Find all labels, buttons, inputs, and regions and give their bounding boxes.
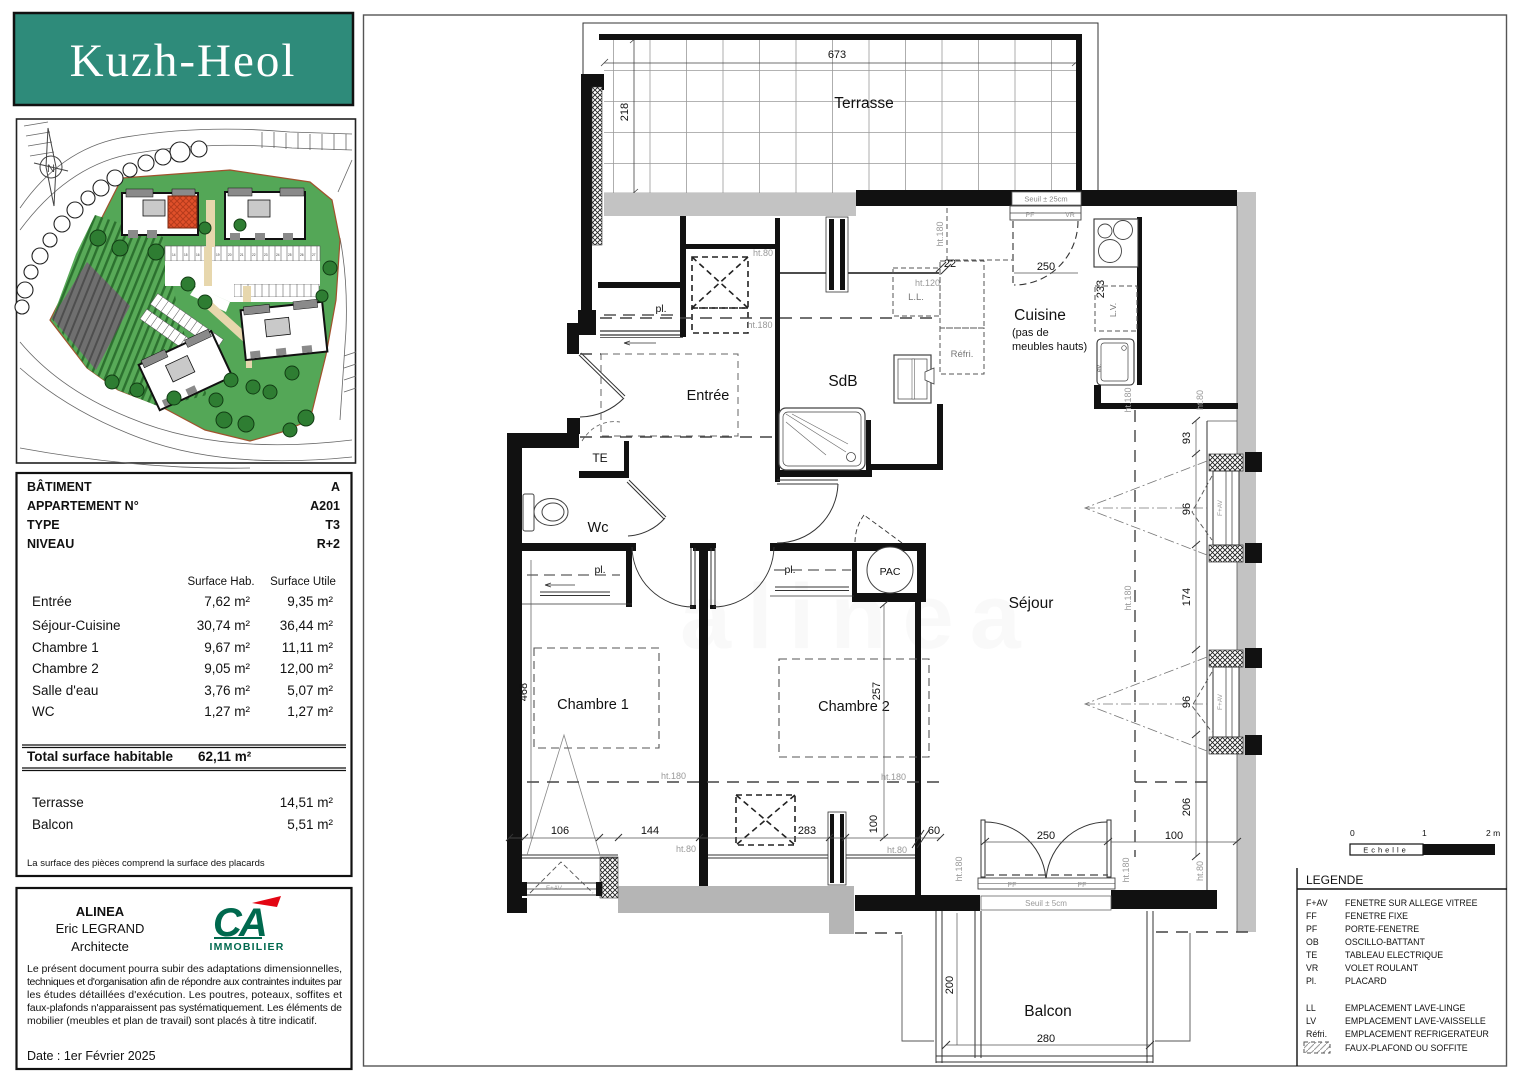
svg-text:EMPLACEMENT LAVE-LINGE: EMPLACEMENT LAVE-LINGE: [1345, 1003, 1466, 1013]
svg-text:PF: PF: [1008, 882, 1017, 889]
svg-text:2 m: 2 m: [1486, 828, 1500, 838]
svg-text:Chambre 2: Chambre 2: [818, 699, 890, 715]
svg-text:100: 100: [868, 815, 880, 833]
svg-text:15: 15: [184, 253, 188, 257]
svg-text:7,62 m²: 7,62 m²: [204, 594, 250, 609]
svg-text:L.L.: L.L.: [908, 292, 924, 303]
svg-text:257: 257: [871, 682, 883, 700]
svg-text:ht.180: ht.180: [954, 856, 964, 881]
svg-text:ht.80: ht.80: [1195, 861, 1205, 881]
svg-text:Date : 1er Février 2025: Date : 1er Février 2025: [27, 1049, 156, 1063]
svg-text:Entrée: Entrée: [32, 594, 72, 609]
svg-text:Le présent document pourra sub: Le présent document pourra subir des ada…: [27, 963, 342, 975]
svg-text:ht.80: ht.80: [887, 845, 907, 855]
svg-text:14,51 m²: 14,51 m²: [280, 795, 334, 810]
svg-text:25: 25: [288, 253, 292, 257]
svg-text:FAUX-PLAFOND OU SOFFITE: FAUX-PLAFOND OU SOFFITE: [1345, 1043, 1468, 1053]
svg-text:EMPLACEMENT LAVE-VAISSELLE: EMPLACEMENT LAVE-VAISSELLE: [1345, 1016, 1486, 1026]
svg-text:F+AV: F+AV: [546, 885, 563, 892]
svg-text:meubles hauts): meubles hauts): [1012, 341, 1087, 353]
svg-text:Surface Hab.: Surface Hab.: [187, 576, 254, 588]
svg-text:(pas de: (pas de: [1012, 327, 1049, 339]
svg-text:14: 14: [172, 253, 176, 257]
svg-text:Echelle: Echelle: [1363, 846, 1409, 855]
svg-text:144: 144: [641, 825, 659, 837]
svg-text:218: 218: [619, 103, 631, 121]
svg-text:Chambre 1: Chambre 1: [557, 697, 629, 713]
svg-text:Terrasse: Terrasse: [32, 795, 84, 810]
svg-text:Seuil ± 5cm: Seuil ± 5cm: [1025, 899, 1067, 908]
svg-text:Réfri.: Réfri.: [951, 349, 974, 360]
svg-text:3,76 m²: 3,76 m²: [204, 683, 250, 698]
svg-text:23: 23: [264, 253, 268, 257]
svg-text:96: 96: [1181, 503, 1193, 515]
svg-text:F+AV: F+AV: [1217, 693, 1224, 710]
svg-text:pl.: pl.: [655, 303, 666, 315]
svg-text:Séjour: Séjour: [1009, 595, 1054, 612]
svg-text:ht.120: ht.120: [915, 278, 940, 288]
svg-text:Séjour-Cuisine: Séjour-Cuisine: [32, 618, 121, 633]
svg-text:19: 19: [216, 253, 220, 257]
svg-text:FF: FF: [1306, 911, 1317, 921]
svg-text:9,35 m²: 9,35 m²: [287, 594, 333, 609]
svg-text:F+AV: F+AV: [1217, 499, 1224, 516]
svg-text:OSCILLO-BATTANT: OSCILLO-BATTANT: [1345, 937, 1425, 947]
svg-text:La surface des pièces comprend: La surface des pièces comprend la surfac…: [27, 858, 265, 869]
svg-text:1: 1: [1422, 828, 1427, 838]
svg-text:faux-plafonds n'apparaissent p: faux-plafonds n'apparaissent pas systéma…: [27, 1002, 342, 1014]
svg-text:22: 22: [252, 253, 256, 257]
svg-text:673: 673: [828, 49, 846, 61]
svg-text:93: 93: [1181, 432, 1193, 444]
svg-text:ht.180: ht.180: [881, 772, 906, 782]
svg-text:26: 26: [300, 253, 304, 257]
svg-text:L.V.: L.V.: [1108, 303, 1118, 317]
svg-text:468: 468: [518, 683, 530, 701]
svg-text:pl.: pl.: [784, 564, 795, 576]
svg-text:30,74 m²: 30,74 m²: [197, 618, 251, 633]
svg-text:BÂTIMENT: BÂTIMENT: [27, 479, 92, 494]
svg-text:5,07 m²: 5,07 m²: [287, 683, 333, 698]
svg-text:FENETRE SUR ALLEGE VITREE: FENETRE SUR ALLEGE VITREE: [1345, 898, 1478, 908]
svg-text:VOLET ROULANT: VOLET ROULANT: [1345, 963, 1419, 973]
svg-text:Surface Utile: Surface Utile: [270, 576, 336, 588]
svg-text:1,27 m²: 1,27 m²: [287, 704, 333, 719]
svg-text:OB: OB: [1306, 937, 1319, 947]
svg-text:Pl.: Pl.: [1306, 976, 1316, 986]
svg-text:Eric LEGRAND: Eric LEGRAND: [56, 921, 145, 936]
svg-text:A201: A201: [310, 499, 340, 513]
svg-text:27: 27: [312, 253, 316, 257]
svg-text:ht.180: ht.180: [1121, 857, 1131, 882]
svg-text:F+AV: F+AV: [1306, 898, 1328, 908]
svg-text:LEGENDE: LEGENDE: [1306, 873, 1363, 887]
svg-text:21: 21: [240, 253, 244, 257]
svg-text:PLACARD: PLACARD: [1345, 976, 1387, 986]
svg-text:36,44 m²: 36,44 m²: [280, 618, 334, 633]
svg-text:9,05 m²: 9,05 m²: [204, 661, 250, 676]
svg-text:PF: PF: [1026, 212, 1035, 219]
svg-text:NIVEAU: NIVEAU: [27, 537, 74, 551]
svg-text:T3: T3: [325, 518, 340, 532]
svg-text:LL: LL: [1306, 1003, 1316, 1013]
svg-text:22: 22: [944, 258, 956, 270]
svg-text:ht.80: ht.80: [676, 844, 696, 854]
svg-text:96: 96: [1181, 696, 1193, 708]
svg-text:R+2: R+2: [317, 537, 340, 551]
svg-text:IMMOBILIER: IMMOBILIER: [210, 941, 285, 953]
svg-text:Kuzh-Heol: Kuzh-Heol: [70, 35, 297, 87]
svg-text:20: 20: [228, 253, 232, 257]
svg-text:N: N: [47, 163, 55, 175]
svg-text:250: 250: [1037, 830, 1055, 842]
svg-text:1,27 m²: 1,27 m²: [204, 704, 250, 719]
svg-text:ht.180: ht.180: [747, 320, 772, 330]
svg-text:12,00 m²: 12,00 m²: [280, 661, 334, 676]
svg-text:24: 24: [276, 253, 280, 257]
svg-text:206: 206: [1181, 798, 1193, 816]
svg-text:ht.80: ht.80: [753, 248, 773, 258]
svg-text:Chambre 1: Chambre 1: [32, 640, 99, 655]
svg-text:les études détaillées d'exécut: les études détaillées d'exécution. Les p…: [27, 989, 342, 1001]
svg-text:ht.180: ht.180: [1123, 585, 1133, 610]
svg-text:Terrasse: Terrasse: [834, 95, 893, 112]
svg-text:Architecte: Architecte: [71, 939, 129, 954]
svg-text:11,11 m²: 11,11 m²: [282, 640, 334, 655]
svg-text:Seuil ± 25cm: Seuil ± 25cm: [1024, 195, 1067, 204]
svg-text:PAC: PAC: [880, 566, 901, 578]
svg-text:106: 106: [551, 825, 569, 837]
svg-text:ALINEA: ALINEA: [76, 904, 125, 919]
svg-text:Balcon: Balcon: [32, 817, 73, 832]
svg-text:PORTE-FENETRE: PORTE-FENETRE: [1345, 924, 1419, 934]
svg-text:280: 280: [1037, 1033, 1055, 1045]
svg-text:VR: VR: [1306, 963, 1318, 973]
svg-text:APPARTEMENT N°: APPARTEMENT N°: [27, 499, 139, 513]
svg-text:PF: PF: [1078, 882, 1087, 889]
svg-text:60: 60: [928, 825, 940, 837]
svg-text:ht.80: ht.80: [1195, 390, 1205, 410]
svg-text:TABLEAU ELECTRIQUE: TABLEAU ELECTRIQUE: [1345, 950, 1443, 960]
svg-text:EMPLACEMENT REFRIGERATEUR: EMPLACEMENT REFRIGERATEUR: [1345, 1029, 1489, 1039]
svg-text:250: 250: [1037, 261, 1055, 273]
svg-text:pl.: pl.: [594, 564, 605, 576]
svg-text:100: 100: [1165, 830, 1183, 842]
svg-text:mobilier (meubles et plan de t: mobilier (meubles et plan de travail) so…: [27, 1015, 317, 1027]
svg-text:Cuisine: Cuisine: [1014, 307, 1066, 324]
svg-text:62,11 m²: 62,11 m²: [198, 749, 252, 764]
svg-text:ht.180: ht.180: [661, 771, 686, 781]
svg-text:5,51 m²: 5,51 m²: [287, 817, 333, 832]
svg-text:WC: WC: [32, 704, 55, 719]
svg-text:200: 200: [944, 976, 956, 994]
svg-text:9,67 m²: 9,67 m²: [204, 640, 250, 655]
svg-text:Wc: Wc: [588, 520, 609, 536]
svg-text:0: 0: [1350, 828, 1355, 838]
svg-text:Balcon: Balcon: [1024, 1003, 1071, 1020]
svg-text:SdB: SdB: [828, 373, 857, 390]
svg-text:ht.180: ht.180: [935, 221, 945, 246]
svg-text:Réfri.: Réfri.: [1306, 1029, 1327, 1039]
svg-text:16: 16: [196, 253, 200, 257]
svg-text:Chambre 2: Chambre 2: [32, 661, 99, 676]
svg-text:PF: PF: [1306, 924, 1318, 934]
svg-text:233: 233: [1095, 280, 1107, 298]
svg-text:VR: VR: [1065, 212, 1075, 219]
svg-text:Entrée: Entrée: [687, 388, 730, 404]
svg-text:Salle d'eau: Salle d'eau: [32, 683, 98, 698]
svg-text:alinea: alinea: [680, 566, 1037, 668]
svg-text:FENETRE FIXE: FENETRE FIXE: [1345, 911, 1408, 921]
svg-text:év.: év.: [1096, 364, 1103, 372]
svg-text:LV: LV: [1306, 1016, 1316, 1026]
svg-text:283: 283: [798, 825, 816, 837]
svg-text:A: A: [331, 480, 340, 494]
svg-text:Total surface habitable: Total surface habitable: [27, 749, 174, 764]
svg-text:techniques et d'organisation a: techniques et d'organisation afin de rép…: [27, 976, 342, 988]
svg-text:174: 174: [1181, 588, 1193, 606]
svg-text:TE: TE: [592, 451, 607, 465]
svg-text:ht.180: ht.180: [1123, 387, 1133, 412]
svg-text:TYPE: TYPE: [27, 518, 60, 532]
svg-text:TE: TE: [1306, 950, 1317, 960]
